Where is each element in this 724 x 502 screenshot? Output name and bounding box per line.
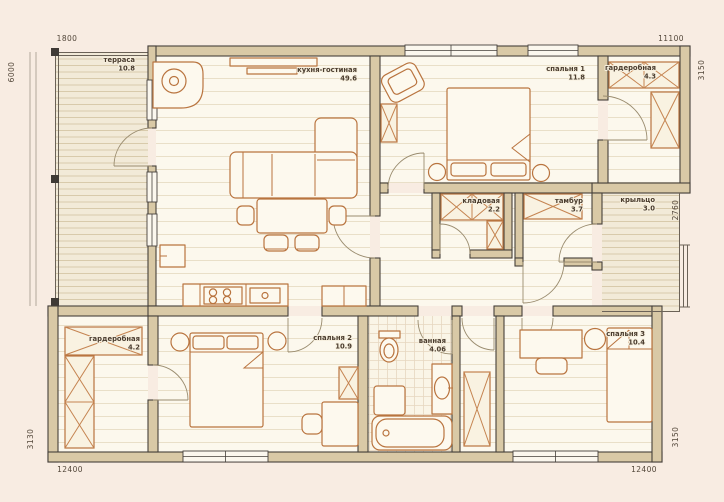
dim-right-middle: 2760 — [671, 200, 680, 221]
desk-bedroom2 — [322, 402, 358, 446]
dim-bottom-left: 12400 — [57, 465, 83, 474]
label-storage-area: 2.2 — [488, 206, 500, 214]
label-wardrobe-top: гардеробная — [605, 64, 656, 72]
dim-right-bottom: 3150 — [671, 427, 680, 448]
label-bedroom1: спальня 1 — [546, 65, 585, 73]
label-porch-area: 3.0 — [643, 205, 655, 213]
label-bathroom-area: 4.06 — [429, 346, 446, 354]
desk-chair-bedroom2 — [302, 414, 322, 434]
label-bedroom2-area: 10.9 — [335, 343, 352, 351]
tv — [247, 68, 297, 74]
nightstand-right — [533, 165, 550, 182]
label-bedroom3: спальня 3 — [606, 330, 645, 338]
floor-plan-canvas: терраса 10.8 кухня-гостиная 49.6 спальня… — [0, 0, 724, 502]
label-terrace: терраса — [104, 56, 136, 64]
toilet-tank — [379, 331, 400, 338]
label-porch: крыльцо — [620, 196, 655, 204]
dining-table — [257, 199, 327, 233]
kitchen-counter — [183, 284, 366, 306]
label-bedroom2: спальня 2 — [313, 334, 352, 342]
label-kitchen-living-area: 49.6 — [340, 75, 357, 83]
tv-stand — [230, 58, 317, 66]
label-vestibule: тамбур — [555, 197, 583, 205]
bed1-pillow-left — [451, 163, 486, 176]
terrace-floor — [55, 52, 148, 306]
dining-chair-left — [237, 206, 254, 225]
label-bathroom: ванная — [419, 337, 446, 345]
label-terrace-area: 10.8 — [118, 65, 135, 73]
dim-terrace-height: 6000 — [7, 62, 16, 83]
label-wardrobe-bottom: гардеробная — [89, 335, 140, 343]
closet-nook-wardrobe — [464, 372, 490, 446]
dim-house-width-top: 11100 — [658, 34, 684, 43]
label-bedroom1-area: 11.8 — [568, 74, 585, 82]
label-bedroom3-area: 10.4 — [628, 339, 645, 347]
label-wardrobe-bottom-area: 4.2 — [128, 344, 140, 352]
bed2-pillow-left — [193, 336, 224, 349]
porch-floor — [602, 193, 680, 312]
desk-chair-bedroom3 — [536, 358, 567, 374]
dim-bottom-right: 12400 — [631, 465, 657, 474]
dim-terrace-width: 1800 — [57, 34, 78, 43]
floor-plan-drawing: терраса 10.8 кухня-гостиная 49.6 спальня… — [0, 0, 724, 502]
stool — [585, 329, 606, 350]
label-vestibule-area: 3.7 — [571, 206, 583, 214]
label-storage: кладовая — [462, 197, 500, 205]
bed2-pillow-right — [227, 336, 258, 349]
side-table-left — [171, 333, 189, 351]
dining-chair-right — [329, 206, 346, 225]
washing-machine — [374, 386, 405, 415]
bedroom1-wardrobe-x — [381, 104, 397, 142]
desk-bedroom3 — [520, 330, 582, 358]
corner-fireplace — [153, 62, 203, 108]
label-wardrobe-top-area: 4.3 — [644, 73, 656, 81]
side-table-right — [268, 332, 286, 350]
bed1-pillow-right — [491, 163, 526, 176]
nightstand-left — [429, 164, 446, 181]
dim-left-bottom: 3130 — [26, 429, 35, 450]
label-kitchen-living: кухня-гостиная — [297, 66, 357, 74]
dim-right-top: 3150 — [697, 60, 706, 81]
